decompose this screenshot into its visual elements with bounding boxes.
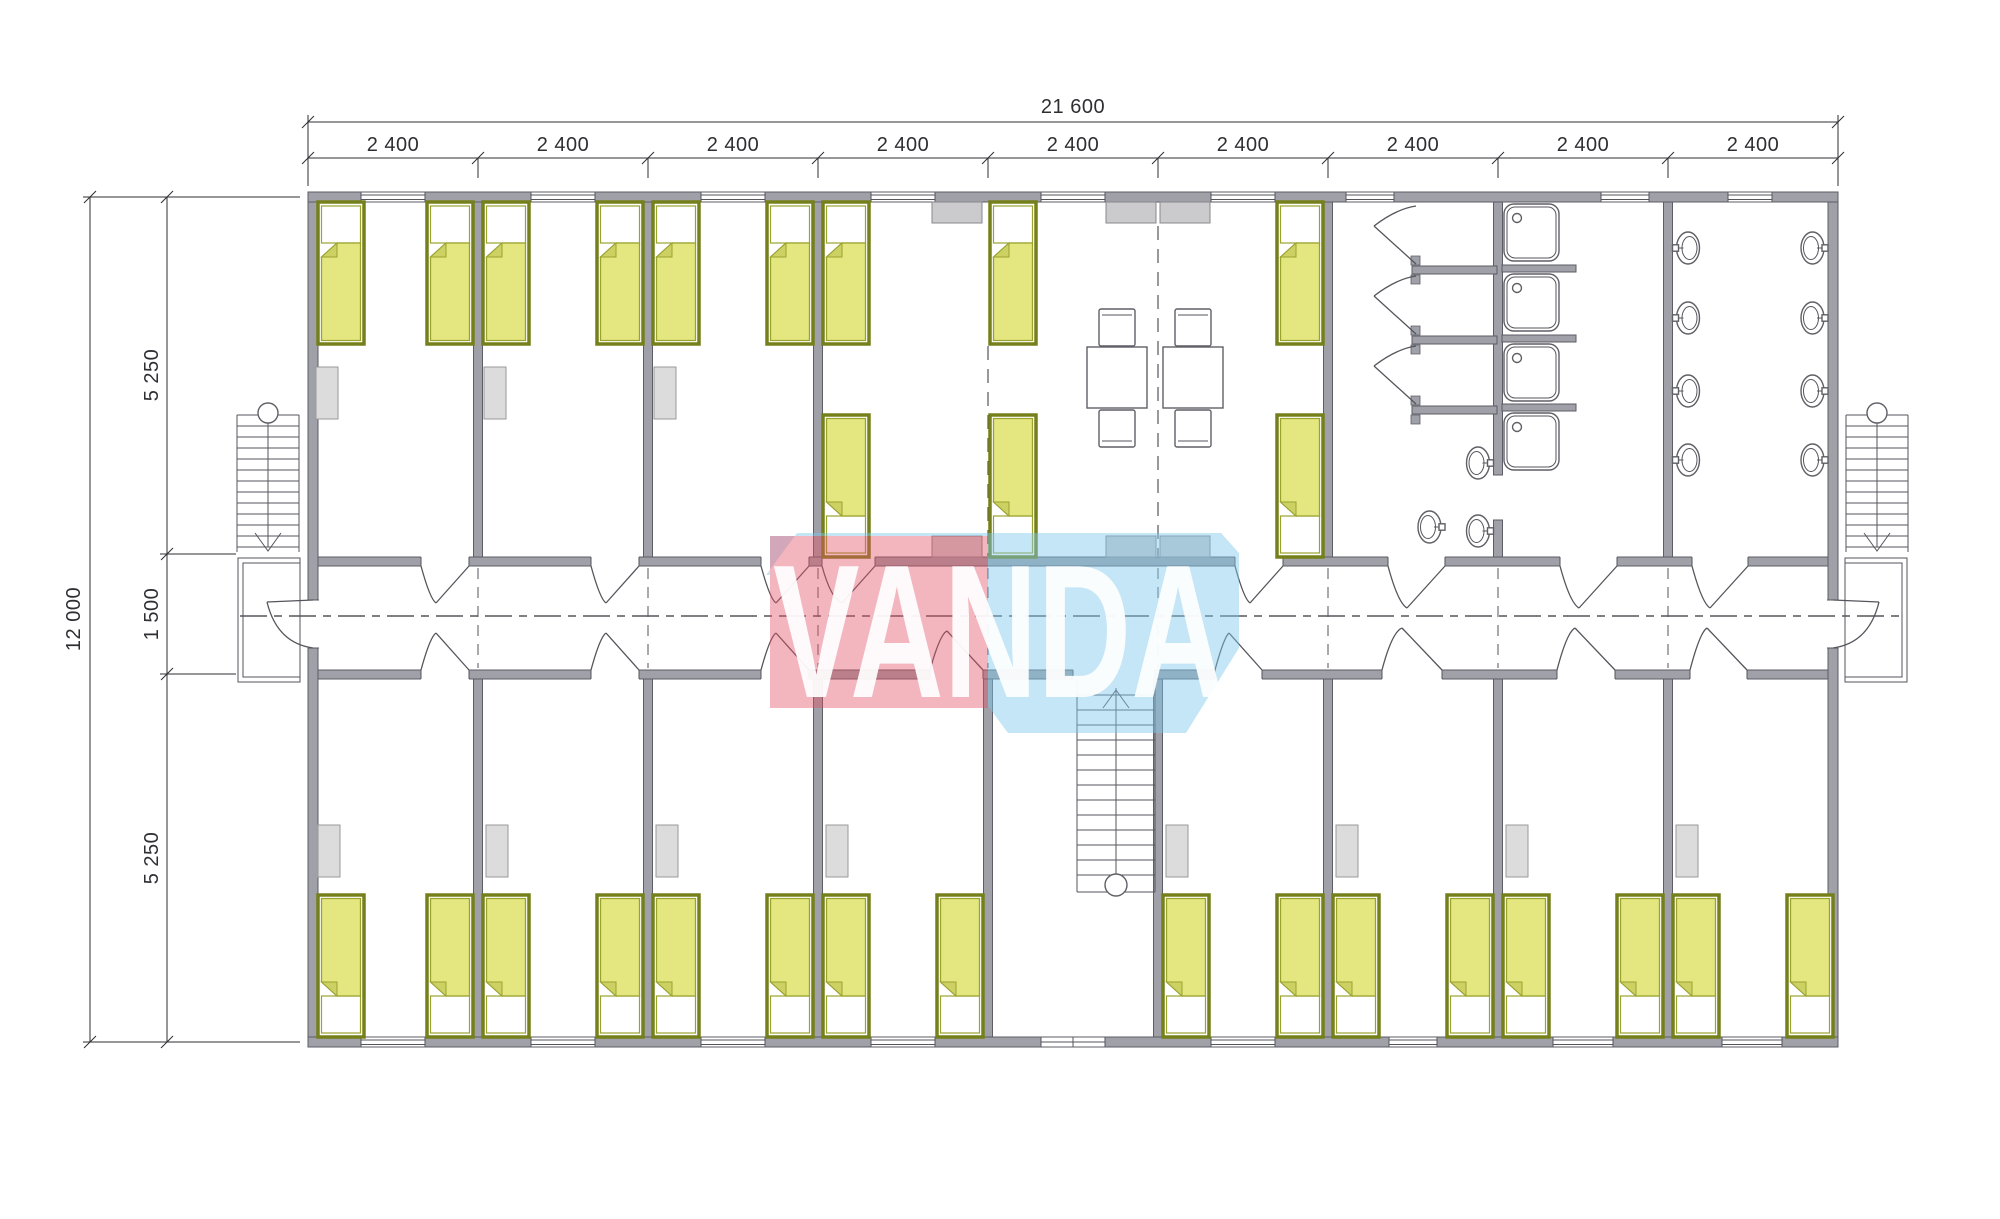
entrance-landing xyxy=(238,558,300,682)
washbasin-icon xyxy=(1673,302,1700,334)
bed-icon xyxy=(1277,415,1323,557)
partition-wall xyxy=(644,679,653,1037)
bed-icon xyxy=(1787,895,1833,1037)
shower-partition xyxy=(1502,265,1576,272)
bed-icon xyxy=(823,895,869,1037)
shower-partition xyxy=(1502,335,1576,342)
locker-icon xyxy=(654,367,676,419)
shower-tray-icon xyxy=(1504,413,1559,470)
locker-icon xyxy=(1336,825,1358,877)
wc-stall-door-swing xyxy=(1374,206,1416,404)
wc-stall-partition xyxy=(1412,406,1497,414)
bed-icon xyxy=(767,895,813,1037)
external-staircase-icon xyxy=(1846,403,1908,552)
bed-icon xyxy=(1163,895,1209,1037)
bed-icon xyxy=(937,895,983,1037)
external-staircase-icon xyxy=(237,403,299,552)
washbasin-icon xyxy=(1801,375,1828,407)
bed-icon xyxy=(427,202,473,344)
table-icon xyxy=(1163,347,1223,408)
shower-tray-icon xyxy=(1504,204,1559,261)
table-icon xyxy=(1087,347,1147,408)
locker-icon xyxy=(486,825,508,877)
washbasin-icon xyxy=(1673,444,1700,476)
dimension-left: 12 000 5 250 1 500 5 250 xyxy=(63,191,300,1048)
locker-icon xyxy=(1676,825,1698,877)
bed-icon xyxy=(1277,202,1323,344)
bed-icon xyxy=(990,202,1036,344)
partition-wall xyxy=(474,202,483,557)
segment-label: 5 250 xyxy=(141,349,163,402)
toilet-icon xyxy=(1418,511,1445,543)
locker-icon xyxy=(826,825,848,877)
entrance-door-bottom xyxy=(1041,1038,1105,1047)
washbasin-icon xyxy=(1801,444,1828,476)
partition-wall xyxy=(1664,679,1673,1037)
floor-plan-page: 21 600 2 400 2 400 2 400 2 400 2 400 2 4… xyxy=(0,0,2000,1219)
bed-icon xyxy=(483,895,529,1037)
washbasin-icon xyxy=(1801,232,1828,264)
locker-icon xyxy=(318,825,340,877)
bed-icon xyxy=(483,202,529,344)
bed-icon xyxy=(318,895,364,1037)
bed-icon xyxy=(1673,895,1719,1037)
watermark-logo: VANDA xyxy=(766,526,1239,738)
bed-icon xyxy=(1447,895,1493,1037)
entrance-landing xyxy=(1845,558,1907,682)
bay-label: 2 400 xyxy=(1727,134,1780,156)
wc-stall-partition xyxy=(1412,336,1497,344)
bay-dimension-labels: 2 400 2 400 2 400 2 400 2 400 2 400 2 40… xyxy=(367,134,1780,156)
bed-icon xyxy=(653,202,699,344)
bay-label: 2 400 xyxy=(367,134,420,156)
washbasin-icon xyxy=(1801,302,1828,334)
locker-icon xyxy=(484,367,506,419)
floor-plan-drawing: 21 600 2 400 2 400 2 400 2 400 2 400 2 4… xyxy=(0,0,2000,1219)
cabinet-icon xyxy=(1106,202,1156,223)
partition-wall xyxy=(474,679,483,1037)
washbasin-icon xyxy=(1467,515,1494,547)
locker-icon xyxy=(1506,825,1528,877)
locker-icon xyxy=(656,825,678,877)
bay-label: 2 400 xyxy=(1217,134,1270,156)
bay-label: 2 400 xyxy=(877,134,930,156)
bay-label: 2 400 xyxy=(1047,134,1100,156)
bed-icon xyxy=(653,895,699,1037)
partition-wall xyxy=(1494,520,1503,557)
window-row-bottom xyxy=(361,1038,1782,1047)
bed-icon xyxy=(823,202,869,344)
bed-icon xyxy=(318,202,364,344)
locker-icon xyxy=(1166,825,1188,877)
washbasin-icon xyxy=(1673,375,1700,407)
segment-label: 5 250 xyxy=(141,832,163,885)
watermark-text: VANDA xyxy=(773,526,1225,738)
shower-tray-icon xyxy=(1504,344,1559,401)
bed-icon xyxy=(597,202,643,344)
bed-icon xyxy=(1503,895,1549,1037)
partition-wall xyxy=(1494,679,1503,1037)
chair-icon xyxy=(1175,410,1211,447)
partition-wall xyxy=(1324,202,1333,557)
bay-label: 2 400 xyxy=(1557,134,1610,156)
shower-partition xyxy=(1502,404,1576,411)
partition-wall xyxy=(1664,202,1673,557)
chair-icon xyxy=(1175,309,1211,346)
wc-stall-partition xyxy=(1412,266,1497,274)
bed-icon xyxy=(1333,895,1379,1037)
cabinet-icon xyxy=(1160,202,1210,223)
chair-icon xyxy=(1099,410,1135,447)
locker-icon xyxy=(316,367,338,419)
dining-area xyxy=(1087,309,1223,447)
chair-icon xyxy=(1099,309,1135,346)
sanitary-fixtures xyxy=(1418,204,1828,547)
bay-label: 2 400 xyxy=(1387,134,1440,156)
bed-icon xyxy=(1617,895,1663,1037)
bay-label: 2 400 xyxy=(707,134,760,156)
bed-icon xyxy=(1277,895,1323,1037)
total-width-label: 21 600 xyxy=(1041,96,1105,118)
bed-icon xyxy=(427,895,473,1037)
bed-icon xyxy=(597,895,643,1037)
washbasin-icon xyxy=(1467,447,1494,479)
shower-tray-icon xyxy=(1504,274,1559,331)
bed-icon xyxy=(767,202,813,344)
partition-wall xyxy=(644,202,653,557)
washbasin-icon xyxy=(1673,232,1700,264)
dimension-top: 21 600 2 400 2 400 2 400 2 400 2 400 2 4… xyxy=(302,96,1844,186)
total-height-label: 12 000 xyxy=(63,587,85,651)
bay-label: 2 400 xyxy=(537,134,590,156)
segment-label: 1 500 xyxy=(141,588,163,641)
partition-wall xyxy=(814,202,823,557)
cabinet-icon xyxy=(932,202,982,223)
partition-wall xyxy=(1324,679,1333,1037)
